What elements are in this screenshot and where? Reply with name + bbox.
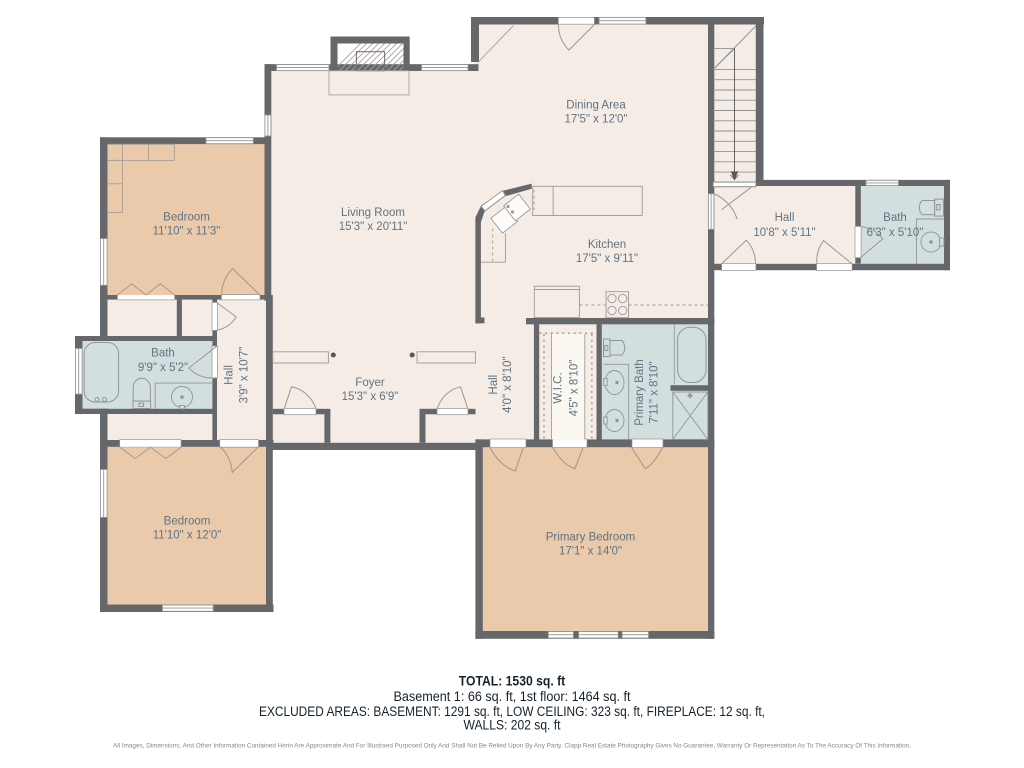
svg-text:17'5" x 9'11": 17'5" x 9'11"	[576, 253, 638, 265]
svg-text:11'10" x 11'3": 11'10" x 11'3"	[153, 226, 221, 238]
svg-text:TOTAL: 1530 sq. ft: TOTAL: 1530 sq. ft	[459, 674, 566, 689]
svg-text:15'3" x 6'9": 15'3" x 6'9"	[342, 391, 399, 403]
svg-text:All Images, Dimensions, And Ot: All Images, Dimensions, And Other Inform…	[113, 743, 911, 750]
svg-text:Bath: Bath	[883, 212, 907, 224]
svg-text:Living Room: Living Room	[341, 207, 405, 219]
svg-text:15'3" x 20'11": 15'3" x 20'11"	[339, 221, 408, 233]
svg-text:WALLS: 202 sq. ft: WALLS: 202 sq. ft	[464, 718, 561, 733]
svg-text:3'9" x 10'7": 3'9" x 10'7"	[239, 347, 251, 404]
svg-text:4'5" x 8'10": 4'5" x 8'10"	[569, 360, 581, 417]
svg-text:17'1" x 14'0": 17'1" x 14'0"	[559, 546, 622, 558]
svg-text:W.I.C.: W.I.C.	[553, 372, 565, 403]
svg-text:Basement 1: 66 sq. ft, 1st flo: Basement 1: 66 sq. ft, 1st floor: 1464 s…	[394, 689, 631, 704]
svg-text:Dining Area: Dining Area	[566, 100, 626, 112]
svg-text:9'9" x 5'2": 9'9" x 5'2"	[138, 362, 188, 374]
svg-text:4'0" x 8'10": 4'0" x 8'10"	[502, 356, 514, 413]
svg-text:Bath: Bath	[151, 348, 175, 360]
svg-text:7'11" x 8'10": 7'11" x 8'10"	[649, 361, 661, 423]
svg-text:Bedroom: Bedroom	[163, 212, 210, 224]
svg-text:Primary Bath: Primary Bath	[634, 359, 646, 425]
svg-text:Hall: Hall	[488, 375, 500, 395]
svg-text:Hall: Hall	[775, 212, 795, 224]
svg-text:6'3" x 5'10": 6'3" x 5'10"	[867, 227, 924, 239]
svg-text:17'5" x 12'0": 17'5" x 12'0"	[564, 114, 627, 126]
svg-text:Primary Bedroom: Primary Bedroom	[546, 532, 635, 544]
svg-text:Foyer: Foyer	[355, 377, 385, 389]
svg-text:11'10" x 12'0": 11'10" x 12'0"	[153, 530, 222, 542]
svg-text:Kitchen: Kitchen	[588, 239, 626, 251]
svg-text:Hall: Hall	[224, 365, 236, 385]
svg-text:10'8" x 5'11": 10'8" x 5'11"	[753, 227, 815, 239]
svg-text:Bedroom: Bedroom	[164, 516, 211, 528]
